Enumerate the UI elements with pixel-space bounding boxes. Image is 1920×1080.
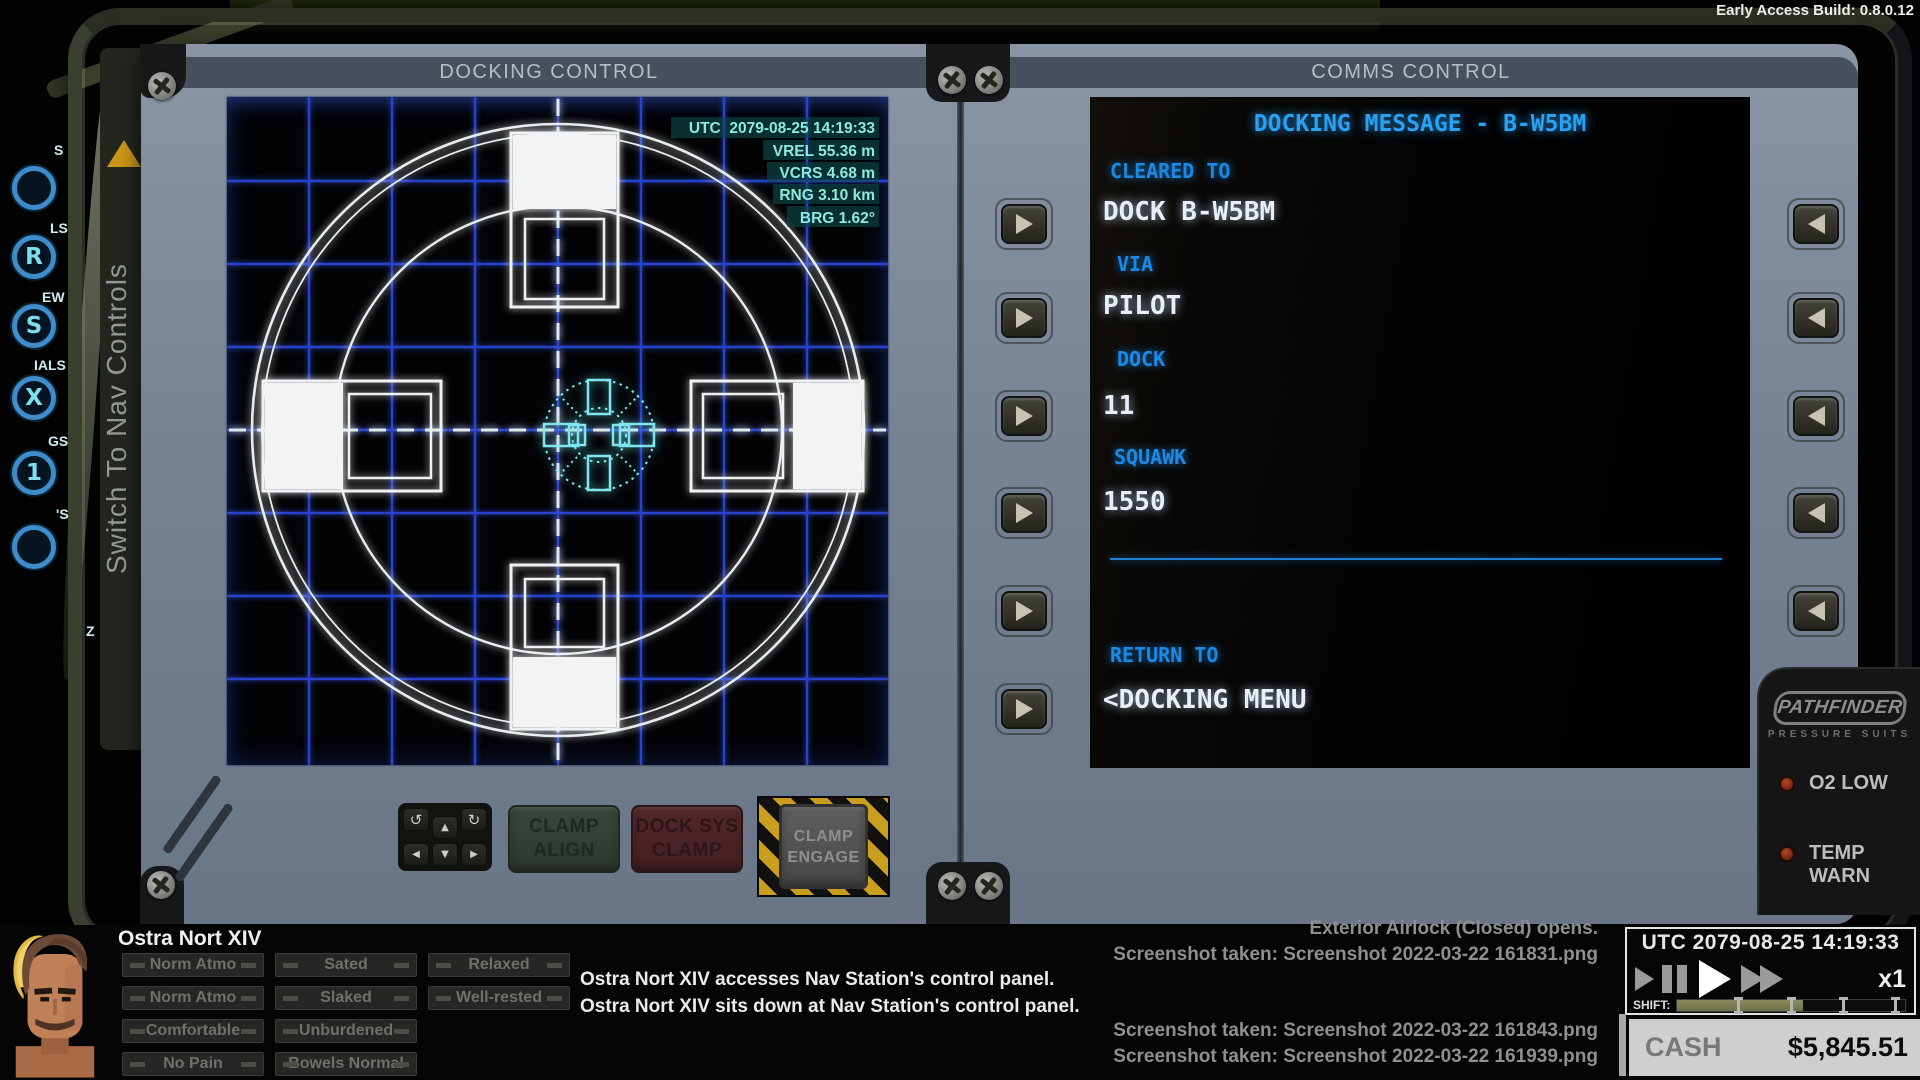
hud-utc: UTC 2079-08-25 14:19:33 <box>689 120 875 137</box>
log-line: Ostra Nort XIV sits down at Nav Station'… <box>580 993 1080 1020</box>
condition-chip: Sated <box>275 953 417 977</box>
nav-switch-triangle-icon <box>107 140 141 167</box>
comms-next-button-6[interactable] <box>995 683 1053 735</box>
left-triangle-icon <box>1808 214 1825 234</box>
up-arrow-icon: ▲ <box>441 822 449 833</box>
right-triangle-icon <box>1016 699 1033 719</box>
docking-radar-display: UTC 2079-08-25 14:19:33 VREL 55.36 m VCR… <box>227 97 888 765</box>
comms-screen: DOCKING MESSAGE - B-W5BM CLEARED TO DOCK… <box>1090 97 1750 768</box>
log-line: Ostra Nort XIV accesses Nav Station's co… <box>580 966 1080 993</box>
field-label-squawk: SQUAWK <box>1114 445 1186 469</box>
return-to-label: RETURN TO <box>1110 643 1218 667</box>
field-label-cleared-to: CLEARED TO <box>1110 159 1230 183</box>
slider-tick-icon <box>1891 997 1900 1014</box>
cash-value: $5,845.51 <box>1788 1032 1908 1063</box>
event-log-recent: Ostra Nort XIV accesses Nav Station's co… <box>580 966 1080 1020</box>
comms-prev-button-5[interactable] <box>1787 585 1845 637</box>
comms-next-button-1[interactable] <box>995 198 1053 250</box>
comms-prev-button-1[interactable] <box>1787 198 1845 250</box>
screw-icon <box>147 871 175 899</box>
radar-svg: UTC 2079-08-25 14:19:33 VREL 55.36 m VCR… <box>227 97 888 765</box>
sidebar-label: IALS <box>34 357 66 373</box>
rotate-cw-icon: ↻ <box>468 811 481 829</box>
screw-icon <box>975 872 1003 900</box>
sidebar-menu-icon-2[interactable]: R <box>12 235 56 279</box>
translate-up-button[interactable]: ▲ <box>432 816 458 839</box>
translate-right-button[interactable]: ▶ <box>461 843 487 866</box>
utc-clock: UTC 2079-08-25 14:19:33 <box>1635 931 1906 955</box>
left-triangle-icon <box>1808 308 1825 328</box>
cash-panel: CASH $5,845.51 <box>1629 1019 1920 1076</box>
comms-prev-button-2[interactable] <box>1787 292 1845 344</box>
docking-message-title: DOCKING MESSAGE - B-W5BM <box>1090 111 1750 137</box>
sidebar-label: GS <box>48 433 68 449</box>
log-line: Screenshot taken: Screenshot 2022-03-22 … <box>1113 1044 1598 1070</box>
slider-tick-icon <box>1734 997 1743 1014</box>
condition-chip: Relaxed <box>428 953 570 977</box>
sidebar-menu-icon-5[interactable]: 1 <box>12 451 56 495</box>
comms-divider-line <box>1110 558 1722 560</box>
condition-chip: Comfortable <box>122 1019 264 1043</box>
event-log-older-bottom: Screenshot taken: Screenshot 2022-03-22 … <box>1113 1018 1598 1070</box>
clamp-align-button[interactable]: CLAMP ALIGN <box>508 805 620 873</box>
right-triangle-icon <box>1016 406 1033 426</box>
comms-control-header: COMMS CONTROL <box>964 57 1858 88</box>
left-triangle-icon <box>1808 406 1825 426</box>
field-value-squawk: 1550 <box>1103 487 1166 517</box>
player-ship-marker <box>544 380 654 490</box>
thruster-pad: ↺ ▲ ↻ ◀ ▼ ▶ <box>398 803 492 871</box>
condition-chip: Bowels Normal <box>275 1052 417 1076</box>
condition-chip: No Pain <box>122 1052 264 1076</box>
field-label-dock: DOCK <box>1117 347 1165 371</box>
play-slow-icon[interactable] <box>1635 967 1654 991</box>
build-version-label: Early Access Build: 0.8.0.12 <box>1716 2 1914 19</box>
log-line: Screenshot taken: Screenshot 2022-03-22 … <box>1113 1018 1598 1044</box>
condition-chip: Norm Atmo <box>122 986 264 1010</box>
o2-low-led-icon <box>1779 776 1795 792</box>
slider-tick-icon <box>1787 997 1796 1014</box>
condition-chips: Norm Atmo Sated Relaxed Norm Atmo Slaked… <box>122 953 570 1076</box>
right-triangle-icon <box>1016 503 1033 523</box>
screw-icon <box>148 72 176 100</box>
condition-chip: Slaked <box>275 986 417 1010</box>
cash-label: CASH <box>1645 1032 1722 1063</box>
sidebar-label: Z <box>86 623 95 639</box>
sidebar-label: S <box>54 142 63 158</box>
menu-glyph: X <box>25 385 43 411</box>
screw-icon <box>938 872 966 900</box>
sidebar-menu-icon-3[interactable]: S <box>12 304 56 348</box>
shift-label: SHIFT: <box>1633 998 1670 1012</box>
left-triangle-icon <box>1808 601 1825 621</box>
fast-forward-icon[interactable] <box>1741 965 1783 993</box>
comms-prev-button-3[interactable] <box>1787 390 1845 442</box>
left-arrow-icon: ◀ <box>412 849 420 860</box>
dock-sys-clamp-button[interactable]: DOCK SYS CLAMP <box>631 805 743 873</box>
rotate-ccw-icon: ↺ <box>410 811 423 829</box>
down-arrow-icon: ▼ <box>441 849 449 860</box>
right-triangle-icon <box>1016 308 1033 328</box>
hud-brg: BRG 1.62° <box>800 210 875 227</box>
sidebar-menu-icon-6[interactable] <box>12 525 56 569</box>
comms-prev-button-4[interactable] <box>1787 487 1845 539</box>
hud-vcrs: VCRS 4.68 m <box>779 165 875 182</box>
temp-warn-warning: TEMP WARN <box>1809 842 1920 888</box>
field-value-dock: 11 <box>1103 391 1134 421</box>
playback-controls: x1 <box>1635 959 1906 999</box>
field-value-via: PILOT <box>1103 291 1181 321</box>
comms-next-button-5[interactable] <box>995 585 1053 637</box>
menu-glyph: S <box>26 313 43 339</box>
portrait-art <box>4 928 106 1078</box>
menu-glyph: R <box>25 244 43 270</box>
sidebar-label: LS <box>50 220 68 236</box>
condition-chip: Unburdened <box>275 1019 417 1043</box>
comms-next-button-2[interactable] <box>995 292 1053 344</box>
comms-next-button-3[interactable] <box>995 390 1053 442</box>
pause-icon[interactable] <box>1662 965 1687 993</box>
menu-glyph: 1 <box>26 460 42 486</box>
character-portrait[interactable] <box>4 928 106 1078</box>
shift-slider[interactable] <box>1676 999 1906 1012</box>
pathfinder-logo: PATHFINDER <box>1772 691 1909 725</box>
log-line: Screenshot taken: Screenshot 2022-03-22 … <box>1113 942 1598 968</box>
rotate-ccw-button[interactable]: ↺ <box>403 808 429 831</box>
condition-chip: Norm Atmo <box>122 953 264 977</box>
translate-left-button[interactable]: ◀ <box>403 843 429 866</box>
pathfinder-sub-brand: PRESSURE SUITS <box>1759 729 1920 740</box>
left-triangle-icon <box>1808 503 1825 523</box>
o2-low-warning: O2 LOW <box>1809 772 1888 795</box>
hud-vrel: VREL 55.36 m <box>773 143 875 160</box>
temp-warn-led-icon <box>1779 846 1795 862</box>
field-label-via: VIA <box>1117 252 1153 276</box>
docking-control-header: DOCKING CONTROL <box>141 57 957 88</box>
rotate-cw-button[interactable]: ↻ <box>461 808 487 831</box>
translate-down-button[interactable]: ▼ <box>432 843 458 866</box>
sidebar-menu-icon-1[interactable] <box>12 166 56 210</box>
event-log-older-top: Exterior Airlock (Closed) opens. Screens… <box>1113 916 1598 968</box>
screw-icon <box>975 66 1003 94</box>
slider-tick-icon <box>1839 997 1848 1014</box>
comms-next-button-4[interactable] <box>995 487 1053 539</box>
right-arrow-icon: ▶ <box>470 849 478 860</box>
right-triangle-icon <box>1016 214 1033 234</box>
time-control-panel: UTC 2079-08-25 14:19:33 x1 SHIFT: <box>1625 927 1916 1015</box>
play-icon[interactable] <box>1699 960 1731 998</box>
hud-rng: RNG 3.10 km <box>779 187 875 204</box>
right-triangle-icon <box>1016 601 1033 621</box>
docking-menu-link[interactable]: <DOCKING MENU <box>1103 685 1307 715</box>
character-name: Ostra Nort XIV <box>118 927 262 951</box>
field-value-cleared-to: DOCK B-W5BM <box>1103 197 1275 227</box>
sidebar-menu-icon-4[interactable]: X <box>12 376 56 420</box>
shift-slider-row: SHIFT: <box>1633 997 1906 1013</box>
speed-indicator: x1 <box>1878 965 1906 994</box>
game-screen: R S X 1 S LS EW IALS GS 'S Z Switch To N… <box>0 0 1920 1080</box>
condition-chip: Well-rested <box>428 986 570 1010</box>
log-line: Exterior Airlock (Closed) opens. <box>1113 916 1598 942</box>
cash-panel-tab <box>1619 1014 1626 1076</box>
console-seam <box>957 44 964 924</box>
screw-icon <box>938 66 966 94</box>
sidebar-label: EW <box>42 289 65 305</box>
pathfinder-suit-panel: PATHFINDER PRESSURE SUITS O2 LOW TEMP WA… <box>1757 667 1920 915</box>
sidebar-label: 'S <box>56 506 69 522</box>
clamp-engage-button[interactable]: CLAMP ENGAGE <box>779 804 868 889</box>
